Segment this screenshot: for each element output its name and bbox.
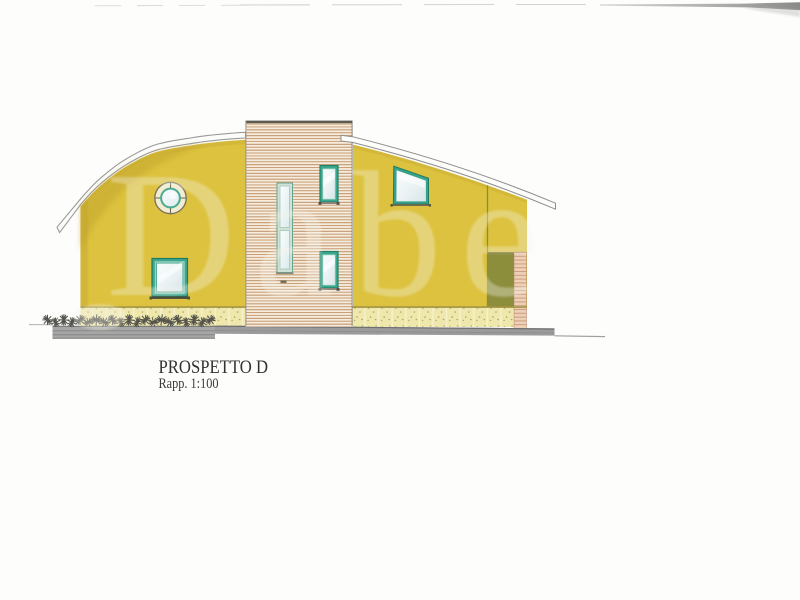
svg-text:Dabe: Dabe [106, 135, 558, 334]
svg-text:Rapp. 1:100: Rapp. 1:100 [159, 376, 219, 392]
